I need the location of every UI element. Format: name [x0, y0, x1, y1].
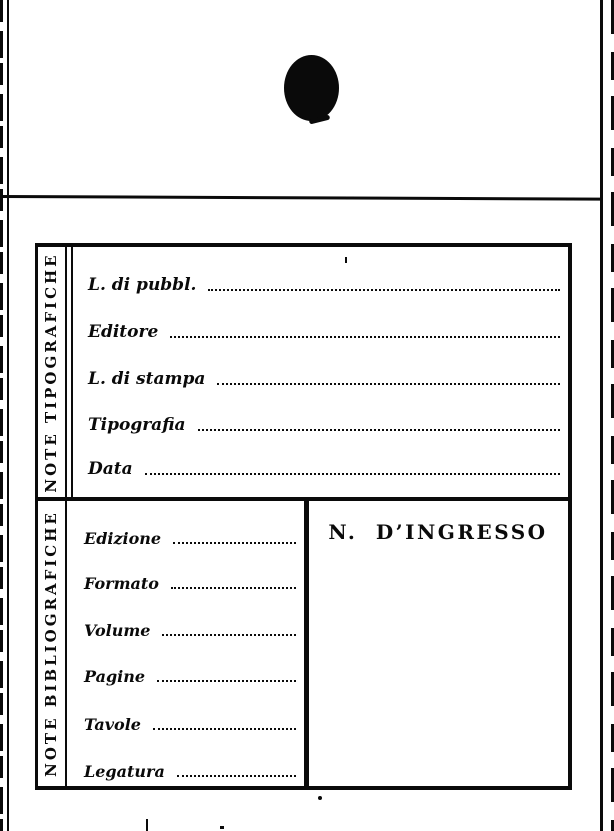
dotted-blank-line [145, 473, 560, 475]
field-row-edizione: Edizione [84, 525, 296, 548]
field-label: Editore [88, 323, 170, 342]
punch-hole [284, 55, 339, 121]
field-label: Edizione [84, 530, 173, 548]
field-row-pagine: Pagine [84, 663, 296, 686]
dotted-blank-line [170, 336, 560, 338]
dotted-blank-line [153, 728, 296, 730]
ingresso-box-title: N. D’INGRESSO [309, 520, 567, 544]
dotted-blank-line [217, 383, 560, 385]
field-row-l-di-stampa: L. di stampa [88, 366, 560, 389]
field-row-volume: Volume [84, 617, 296, 640]
scan-speck [146, 819, 148, 831]
field-label: L. di stampa [88, 370, 217, 389]
field-row-legatura: Legatura [84, 758, 296, 781]
dotted-blank-line [177, 775, 296, 777]
scanned-catalog-card: NOTE TIPOGRAFICHE L. di pubbl. Editore L… [0, 0, 614, 831]
bibliographic-side-label: NOTE BIBLIOGRAFICHE [38, 501, 64, 786]
field-label: Formato [84, 575, 171, 593]
field-row-tipografia: Tipografia [88, 412, 560, 435]
field-row-tavole: Tavole [84, 711, 296, 734]
scan-speck [318, 796, 322, 800]
field-label: Tipografia [88, 416, 198, 435]
dotted-blank-line [198, 429, 560, 431]
catalog-card-table: NOTE TIPOGRAFICHE L. di pubbl. Editore L… [35, 243, 572, 790]
dotted-blank-line [208, 289, 560, 291]
field-label: Data [88, 460, 145, 479]
field-label: Pagine [84, 668, 157, 686]
dotted-blank-line [162, 634, 296, 636]
field-row-l-di-pubbl: L. di pubbl. [88, 272, 560, 295]
scan-edge-left [0, 0, 3, 831]
field-row-data: Data [88, 456, 560, 479]
dotted-blank-line [173, 542, 296, 544]
typographic-side-label: NOTE TIPOGRAFICHE [38, 249, 64, 496]
field-label: Tavole [84, 716, 153, 734]
field-label: L. di pubbl. [88, 276, 208, 295]
header-divider-line [0, 195, 602, 201]
dotted-blank-line [157, 680, 296, 682]
scan-speck [220, 826, 224, 829]
field-label: Volume [84, 622, 162, 640]
bibliographic-label-divider [65, 501, 67, 786]
field-row-editore: Editore [88, 319, 560, 342]
left-vertical-rule [7, 0, 9, 831]
right-vertical-rule [600, 0, 603, 831]
section-divider-line [38, 497, 568, 501]
dotted-blank-line [171, 587, 296, 589]
field-row-formato: Formato [84, 570, 296, 593]
field-label: Legatura [84, 763, 177, 781]
typographic-label-divider [65, 247, 73, 497]
